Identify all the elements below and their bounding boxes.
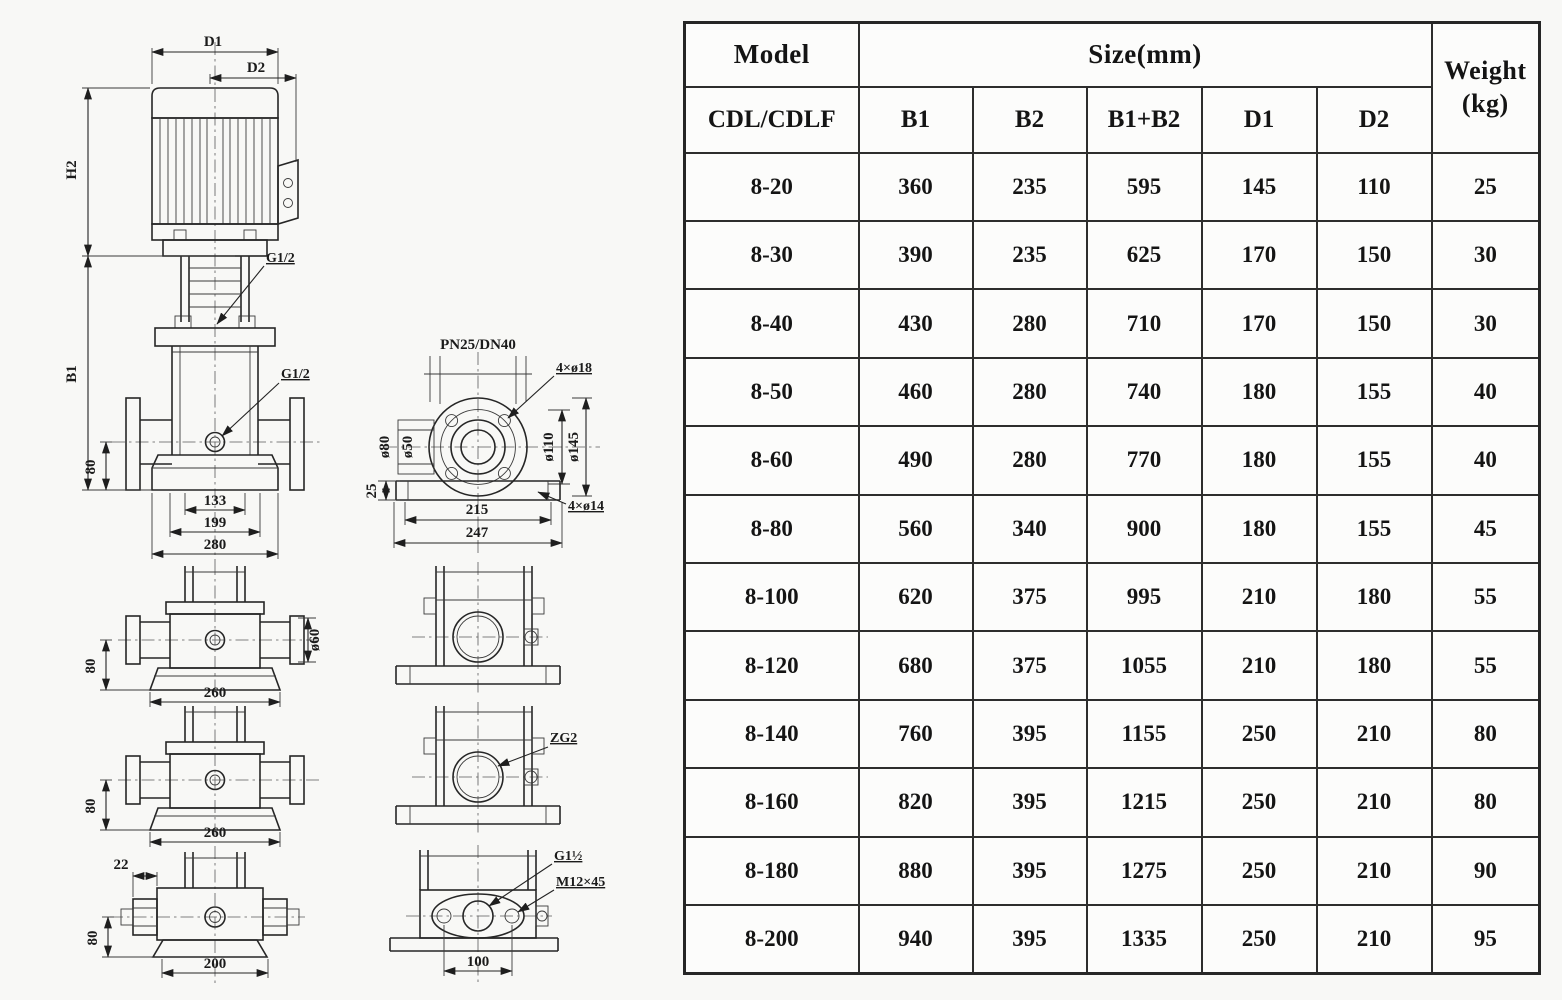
table-row: 8-160820395121525021080	[685, 768, 1540, 836]
label-4xd18: 4×ø18	[556, 361, 592, 376]
subheader-d2: D2	[1317, 87, 1432, 153]
value-cell: 210	[1317, 905, 1432, 974]
value-cell: 145	[1202, 153, 1317, 221]
value-cell: 250	[1202, 905, 1317, 974]
value-cell: 995	[1087, 563, 1202, 631]
col-header-size: Size(mm)	[859, 23, 1432, 87]
value-cell: 55	[1432, 563, 1540, 631]
port-view-a	[396, 562, 560, 696]
value-cell: 250	[1202, 837, 1317, 905]
col-header-model: Model	[685, 23, 859, 87]
pump-dimension-drawing: D1 D2 H2 B1 G1/2 G1/2 80	[0, 0, 683, 1000]
value-cell: 235	[973, 153, 1087, 221]
model-cell: 8-200	[685, 905, 859, 974]
value-cell: 45	[1432, 495, 1540, 563]
dim-h2: H2	[64, 160, 80, 179]
value-cell: 760	[859, 700, 973, 768]
dim-260-a: 260	[204, 685, 227, 701]
label-g12-mid: G1/2	[281, 367, 310, 382]
terminal-box	[278, 160, 298, 224]
label-4xd14: 4×ø14	[568, 499, 604, 514]
dimension-table: Model Size(mm) Weight (kg) CDL/CDLF B1 B…	[683, 21, 1541, 975]
value-cell: 180	[1317, 563, 1432, 631]
table-row: 8-5046028074018015540	[685, 358, 1540, 426]
value-cell: 820	[859, 768, 973, 836]
value-cell: 460	[859, 358, 973, 426]
model-cell: 8-20	[685, 153, 859, 221]
value-cell: 40	[1432, 426, 1540, 494]
value-cell: 170	[1202, 289, 1317, 357]
pump-datasheet-page: D1 D2 H2 B1 G1/2 G1/2 80	[0, 0, 1562, 1000]
dim-80-front: 80	[83, 460, 99, 475]
table-row: 8-140760395115525021080	[685, 700, 1540, 768]
value-cell: 900	[1087, 495, 1202, 563]
value-cell: 155	[1317, 426, 1432, 494]
value-cell: 940	[859, 905, 973, 974]
value-cell: 395	[973, 905, 1087, 974]
dim-80-c: 80	[85, 931, 101, 946]
value-cell: 680	[859, 631, 973, 699]
dim-d1: D1	[204, 34, 222, 50]
value-cell: 280	[973, 358, 1087, 426]
value-cell: 90	[1432, 837, 1540, 905]
table-row: 8-6049028077018015540	[685, 426, 1540, 494]
value-cell: 25	[1432, 153, 1540, 221]
side-view-b: 80 260	[83, 706, 322, 847]
model-cell: 8-100	[685, 563, 859, 631]
model-cell: 8-120	[685, 631, 859, 699]
value-cell: 235	[973, 221, 1087, 289]
dim-200: 200	[204, 956, 227, 972]
value-cell: 180	[1202, 426, 1317, 494]
model-cell: 8-180	[685, 837, 859, 905]
dim-d80: ø80	[377, 436, 393, 459]
value-cell: 395	[973, 768, 1087, 836]
front-view: D1 D2 H2 B1 G1/2 G1/2 80	[64, 34, 320, 562]
dim-80-b: 80	[83, 799, 99, 814]
value-cell: 150	[1317, 289, 1432, 357]
value-cell: 180	[1202, 495, 1317, 563]
dim-199: 199	[204, 515, 227, 531]
value-cell: 280	[973, 426, 1087, 494]
model-cell: 8-80	[685, 495, 859, 563]
col-header-weight: Weight (kg)	[1432, 23, 1540, 153]
value-cell: 30	[1432, 221, 1540, 289]
side-view-c: 22 80 200	[85, 846, 305, 985]
dim-25: 25	[364, 484, 380, 499]
dim-260-b: 260	[204, 825, 227, 841]
value-cell: 210	[1317, 837, 1432, 905]
value-cell: 280	[973, 289, 1087, 357]
value-cell: 80	[1432, 700, 1540, 768]
value-cell: 1155	[1087, 700, 1202, 768]
value-cell: 210	[1202, 563, 1317, 631]
dim-133: 133	[204, 493, 227, 509]
value-cell: 155	[1317, 495, 1432, 563]
table-body: 8-20360235595145110258-30390235625170150…	[685, 153, 1540, 974]
table-row: 8-4043028071017015030	[685, 289, 1540, 357]
value-cell: 375	[973, 563, 1087, 631]
value-cell: 210	[1317, 700, 1432, 768]
value-cell: 360	[859, 153, 973, 221]
weight-label-line1: Weight	[1433, 55, 1539, 88]
value-cell: 1335	[1087, 905, 1202, 974]
dimension-table-area: Model Size(mm) Weight (kg) CDL/CDLF B1 B…	[683, 21, 1538, 975]
side-view-a: ø60 80 260	[83, 562, 323, 707]
dim-280: 280	[204, 537, 227, 553]
value-cell: 1055	[1087, 631, 1202, 699]
subheader-model: CDL/CDLF	[685, 87, 859, 153]
subheader-b1b2: B1+B2	[1087, 87, 1202, 153]
value-cell: 40	[1432, 358, 1540, 426]
model-cell: 8-160	[685, 768, 859, 836]
label-m12x45: M12×45	[556, 875, 605, 890]
table-row: 8-8056034090018015545	[685, 495, 1540, 563]
dim-d110: ø110	[541, 432, 557, 461]
value-cell: 180	[1202, 358, 1317, 426]
value-cell: 1275	[1087, 837, 1202, 905]
model-cell: 8-50	[685, 358, 859, 426]
label-g12-top: G1/2	[266, 251, 295, 266]
value-cell: 95	[1432, 905, 1540, 974]
value-cell: 740	[1087, 358, 1202, 426]
value-cell: 30	[1432, 289, 1540, 357]
dim-d145: ø145	[566, 432, 582, 462]
value-cell: 80	[1432, 768, 1540, 836]
table-row: 8-180880395127525021090	[685, 837, 1540, 905]
value-cell: 340	[973, 495, 1087, 563]
value-cell: 210	[1317, 768, 1432, 836]
table-row: 8-120680375105521018055	[685, 631, 1540, 699]
value-cell: 250	[1202, 768, 1317, 836]
value-cell: 170	[1202, 221, 1317, 289]
table-row: 8-10062037599521018055	[685, 563, 1540, 631]
label-g1half: G1½	[554, 849, 582, 864]
dim-22: 22	[114, 857, 129, 873]
dim-d2: D2	[247, 60, 265, 76]
model-cell: 8-30	[685, 221, 859, 289]
table-row: 8-3039023562517015030	[685, 221, 1540, 289]
value-cell: 210	[1202, 631, 1317, 699]
subheader-d1: D1	[1202, 87, 1317, 153]
dim-d50: ø50	[400, 436, 416, 459]
dim-d60: ø60	[307, 629, 323, 652]
value-cell: 55	[1432, 631, 1540, 699]
dim-80-a: 80	[83, 659, 99, 674]
subheader-b1: B1	[859, 87, 973, 153]
value-cell: 150	[1317, 221, 1432, 289]
header-row-group: Model Size(mm) Weight (kg)	[685, 23, 1540, 87]
value-cell: 180	[1317, 631, 1432, 699]
weight-label-line2: (kg)	[1433, 88, 1539, 121]
value-cell: 375	[973, 631, 1087, 699]
model-cell: 8-140	[685, 700, 859, 768]
model-cell: 8-60	[685, 426, 859, 494]
value-cell: 395	[973, 837, 1087, 905]
subheader-b2: B2	[973, 87, 1087, 153]
table-row: 8-2036023559514511025	[685, 153, 1540, 221]
value-cell: 625	[1087, 221, 1202, 289]
port-view-c: G1½ M12×45 100	[390, 845, 605, 985]
value-cell: 595	[1087, 153, 1202, 221]
dim-247: 247	[466, 525, 489, 541]
model-cell: 8-40	[685, 289, 859, 357]
value-cell: 1215	[1087, 768, 1202, 836]
value-cell: 155	[1317, 358, 1432, 426]
subheader-row: CDL/CDLF B1 B2 B1+B2 D1 D2	[685, 87, 1540, 153]
value-cell: 710	[1087, 289, 1202, 357]
flange-detail-view: PN25/DN40 ø80 ø50	[364, 337, 604, 556]
label-zg2: ZG2	[550, 731, 577, 746]
value-cell: 430	[859, 289, 973, 357]
table-row: 8-200940395133525021095	[685, 905, 1540, 974]
value-cell: 880	[859, 837, 973, 905]
value-cell: 250	[1202, 700, 1317, 768]
value-cell: 395	[973, 700, 1087, 768]
value-cell: 490	[859, 426, 973, 494]
port-view-b: ZG2	[396, 702, 577, 836]
dim-b1: B1	[64, 365, 80, 383]
flange-title: PN25/DN40	[440, 337, 516, 353]
dim-100: 100	[467, 954, 490, 970]
value-cell: 560	[859, 495, 973, 563]
dim-215: 215	[466, 502, 489, 518]
value-cell: 390	[859, 221, 973, 289]
value-cell: 620	[859, 563, 973, 631]
value-cell: 110	[1317, 153, 1432, 221]
value-cell: 770	[1087, 426, 1202, 494]
